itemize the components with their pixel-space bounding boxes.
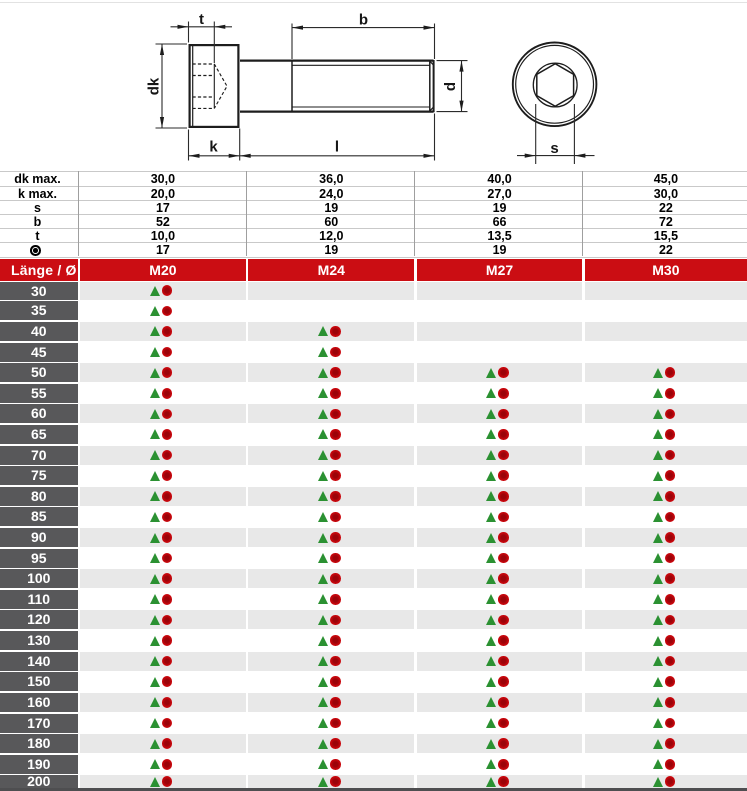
svg-text:l: l — [335, 139, 339, 156]
svg-text:dk: dk — [146, 77, 163, 95]
svg-text:d: d — [442, 82, 459, 91]
svg-text:b: b — [359, 12, 368, 29]
svg-text:s: s — [550, 140, 558, 157]
svg-text:k: k — [209, 139, 218, 156]
svg-text:t: t — [199, 11, 204, 28]
